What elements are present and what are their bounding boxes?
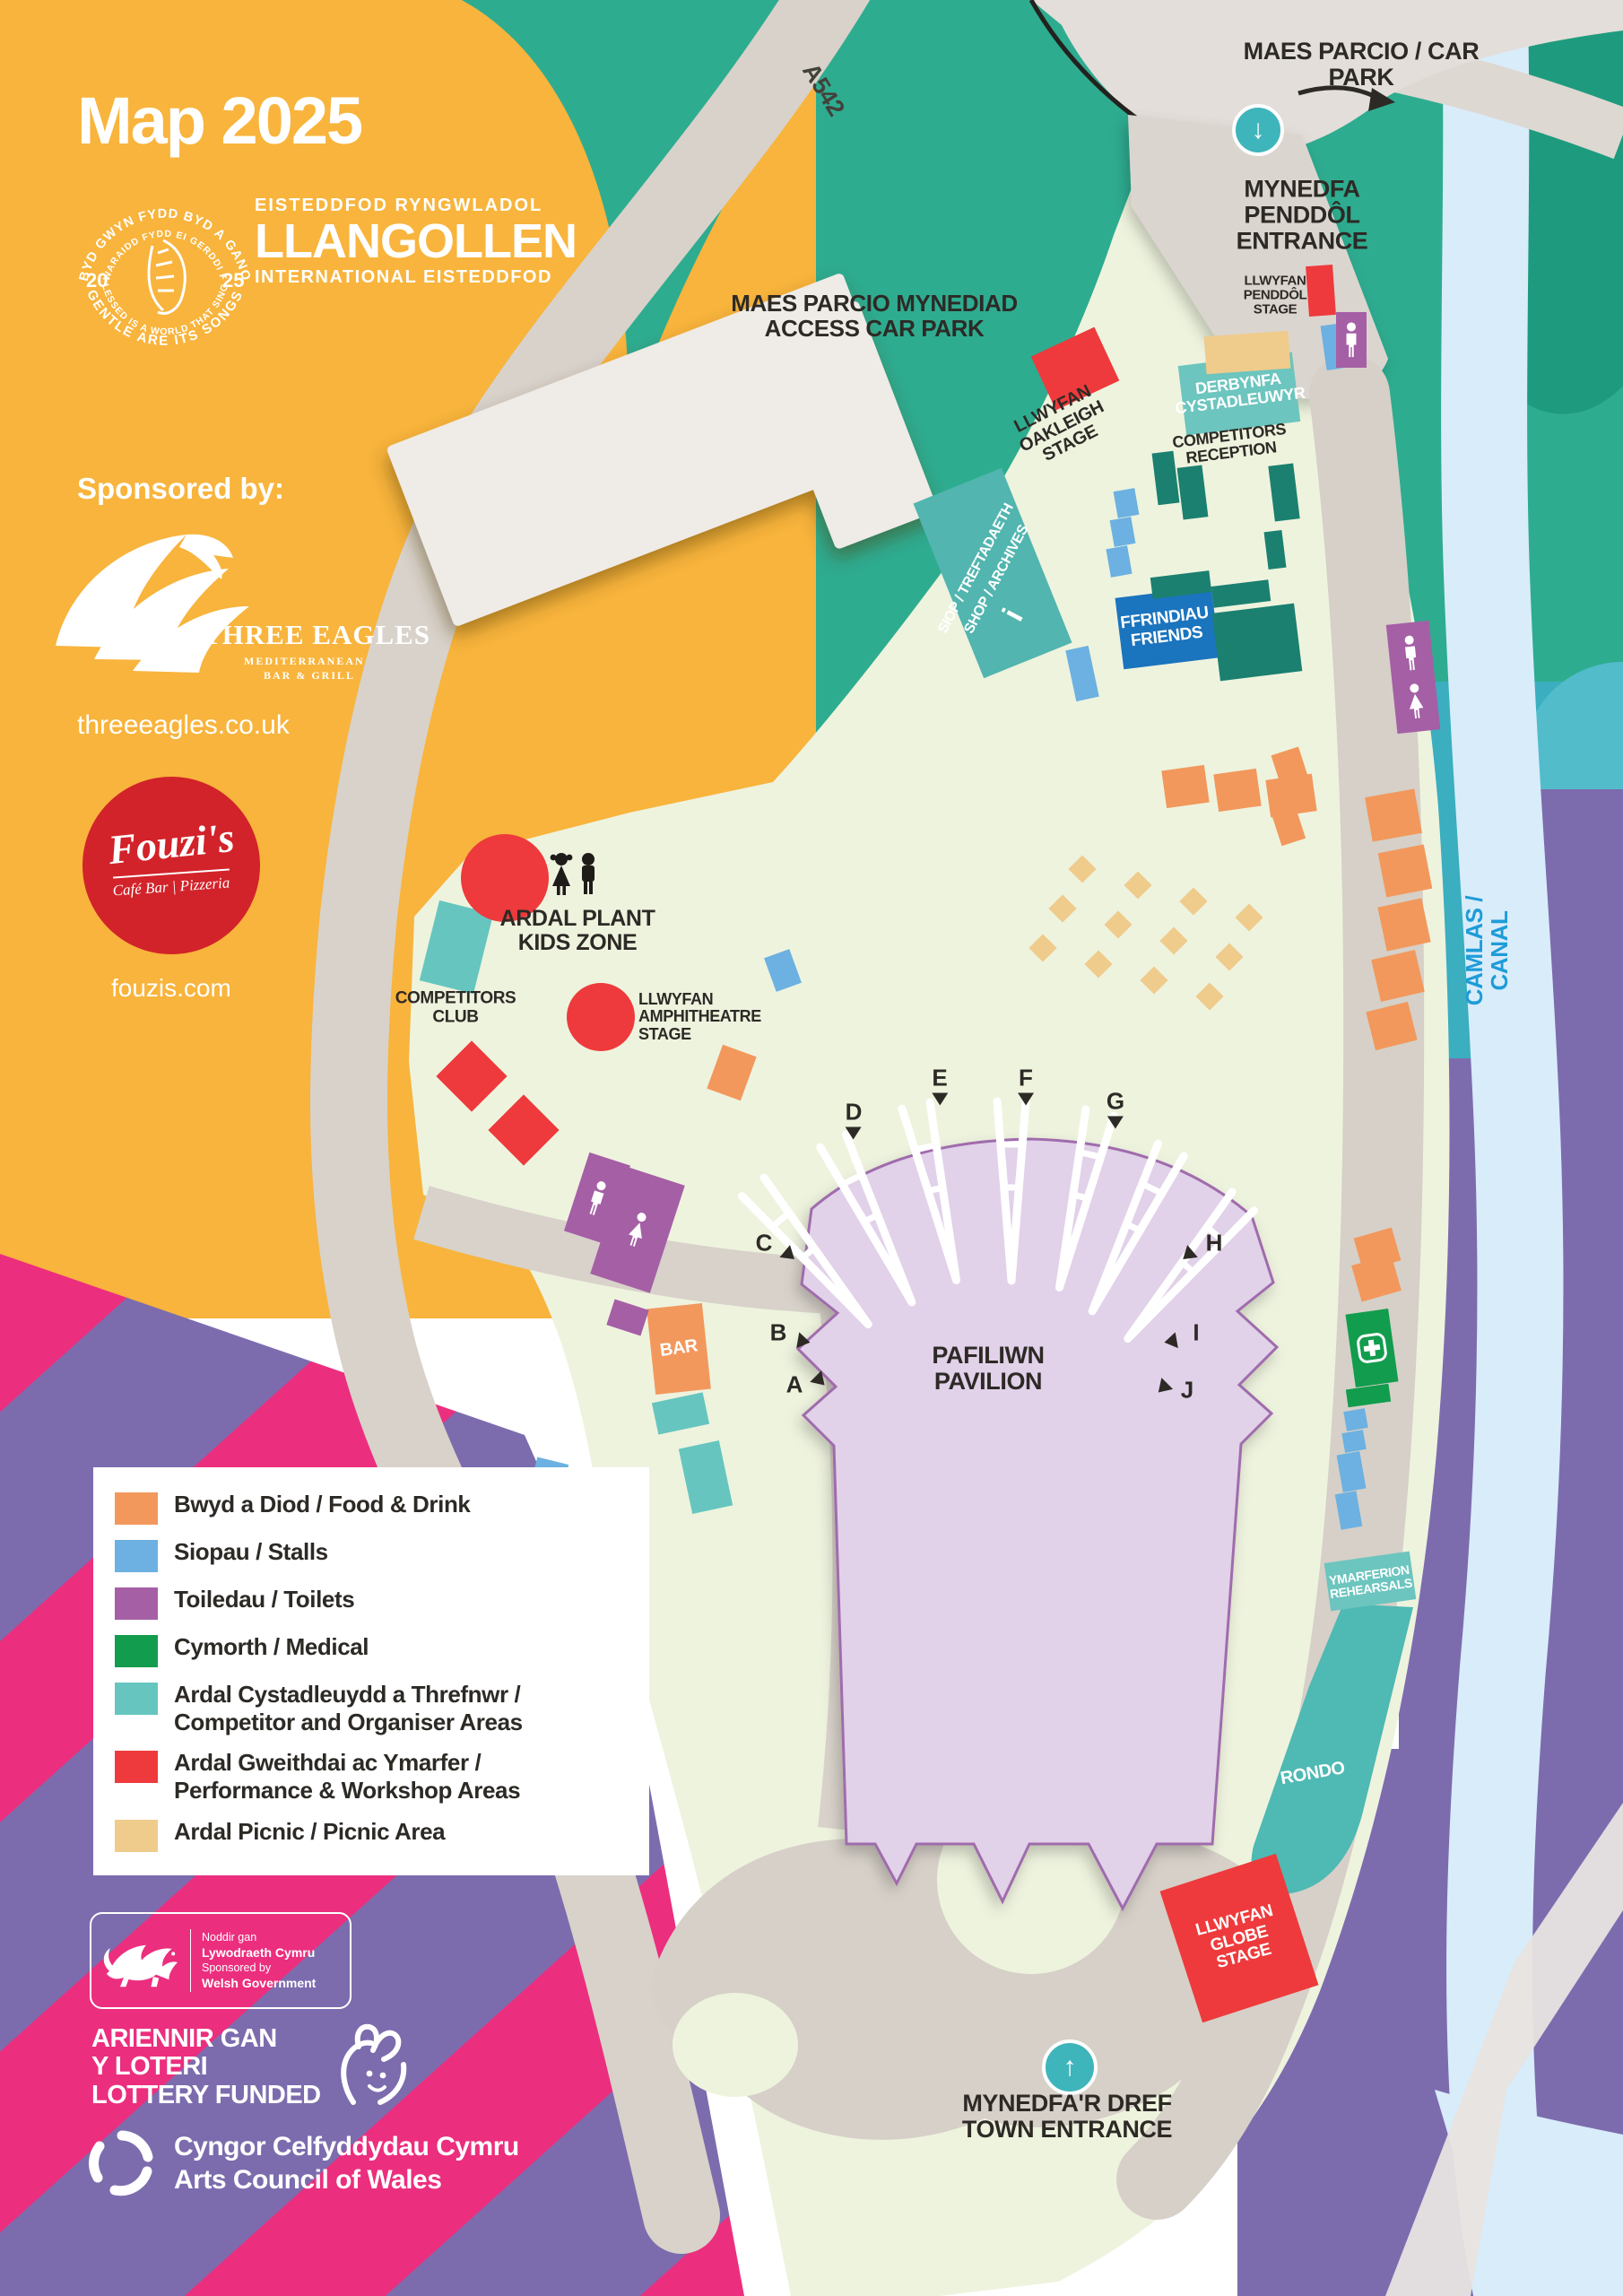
male-toilet-icon	[582, 1178, 612, 1219]
door-arrow-icon	[1018, 1092, 1034, 1105]
pavilion-door-B: B	[770, 1319, 787, 1347]
stall-area	[1106, 545, 1132, 578]
stall-area	[1065, 646, 1098, 701]
door-arrow-icon	[846, 1126, 862, 1139]
toilet-area	[1386, 621, 1440, 734]
picnic-area-dot	[1068, 855, 1096, 883]
badge-harp-lion-icon	[149, 240, 185, 313]
stall-area	[764, 949, 802, 992]
picnic-area-dot	[1124, 871, 1151, 899]
door-arrow-icon	[811, 1370, 831, 1391]
odark-area	[1212, 604, 1303, 682]
door-letter: B	[770, 1319, 787, 1346]
legend-item-toilet: Toiledau / Toilets	[115, 1586, 628, 1620]
food-area	[707, 1045, 756, 1101]
penddol-stage-label: LLWYFAN PENDDÔL STAGE	[1244, 274, 1307, 318]
door-arrow-icon	[1107, 1116, 1124, 1128]
door-arrow-icon	[1153, 1378, 1174, 1398]
door-letter: H	[1206, 1230, 1223, 1257]
toilet-area	[606, 1300, 648, 1336]
door-arrow-icon	[797, 1332, 812, 1350]
legend-label: Ardal Cystadleuydd a Threfnwr /	[174, 1681, 523, 1709]
legend-item-medical: Cymorth / Medical	[115, 1633, 628, 1667]
legend-swatch-medical	[115, 1635, 158, 1667]
odark-area	[1211, 579, 1271, 608]
rondo-label: RONDO	[1279, 1759, 1346, 1789]
legend-label-line2: Competitor and Organiser Areas	[174, 1709, 523, 1736]
badge-year-left: 20	[86, 269, 108, 291]
picnic-area-dot	[1028, 934, 1056, 961]
legend-swatch-organiser	[115, 1683, 158, 1715]
access-carpark-label: MAES PARCIO MYNEDIAD ACCESS CAR PARK	[731, 291, 1017, 341]
three-eagles-name: THREE EAGLES	[203, 619, 430, 651]
door-letter: I	[1193, 1319, 1199, 1346]
wgov-line4: Welsh Government	[202, 1976, 316, 1990]
legend-label: Toiledau / Toilets	[174, 1586, 354, 1613]
up-arrow-icon: ↑	[1063, 2054, 1077, 2081]
legend-item-workshop: Ardal Gweithdai ac Ymarfer /Performance …	[115, 1749, 628, 1804]
pavilion-door-E: E	[932, 1065, 947, 1092]
lottery-line2: Y LOTERI	[91, 2053, 321, 2081]
food-area	[1371, 950, 1425, 1002]
food-area	[1366, 1002, 1417, 1050]
legend-label: Cymorth / Medical	[174, 1633, 369, 1661]
town-entrance-label: MYNEDFA'R DREF TOWN ENTRANCE	[962, 2091, 1172, 2143]
workshop-area	[567, 983, 635, 1051]
eisteddfod-badge-logo: BYD GWYN FYDD BYD A GANO GWARAIDD FYDD E…	[75, 187, 255, 366]
arts-council-logo: Cyngor Celfyddydau Cymru Arts Council of…	[86, 2127, 519, 2199]
picnic-area	[1204, 331, 1291, 374]
door-letter: A	[786, 1371, 803, 1398]
lottery-crossed-fingers-icon	[328, 2020, 411, 2109]
stall-area	[1335, 1491, 1363, 1530]
wgov-line1: Noddir gan	[202, 1930, 316, 1944]
sponsored-by-heading: Sponsored by:	[77, 472, 284, 506]
picnic-area-dot	[1195, 982, 1223, 1010]
picnic-area-dot	[1215, 943, 1243, 970]
medical-area	[1346, 1384, 1391, 1407]
picnic-area-dot	[1048, 894, 1076, 922]
medical-area	[1346, 1309, 1399, 1387]
picnic-area-dot	[1140, 966, 1167, 994]
legend-item-food: Bwyd a Diod / Food & Drink	[115, 1491, 628, 1525]
food-area	[1213, 769, 1261, 812]
fouzis-tagline: Café Bar | Pizzeria	[82, 872, 261, 902]
legend-label: Ardal Gweithdai ac Ymarfer /	[174, 1749, 520, 1777]
pavilion-door-D: D	[846, 1099, 863, 1126]
legend-swatch-workshop	[115, 1751, 158, 1783]
odark-area	[1264, 530, 1287, 570]
down-arrow-icon: ↓	[1252, 117, 1265, 143]
legend-swatch-toilet	[115, 1587, 158, 1620]
lottery-line1: ARIENNIR GAN	[91, 2025, 321, 2053]
workshop-area	[436, 1040, 507, 1111]
wgov-divider	[190, 1929, 191, 1992]
penddol-entrance-label: MYNEDFA PENDDÔL ENTRANCE	[1237, 176, 1368, 254]
door-letter: D	[846, 1099, 863, 1126]
male-toilet-icon	[1399, 634, 1422, 672]
door-arrow-icon	[1178, 1245, 1198, 1265]
legend-item-stall: Siopau / Stalls	[115, 1538, 628, 1572]
three-eagles-logo: THREE EAGLES MEDITERRANEAN BAR & GRILL	[45, 520, 377, 713]
badge-year-right: 25	[222, 269, 244, 291]
food-area	[1365, 789, 1422, 842]
entrance-area: ↑	[1042, 2039, 1098, 2095]
festival-map-poster: ↓↑ABCDEFGHIJMAES PARCIO / CAR PARKMYNEDF…	[0, 0, 1623, 2296]
three-eagles-url: threeeagles.co.uk	[77, 710, 290, 741]
organiser-area	[652, 1392, 709, 1434]
arts-council-line2: Arts Council of Wales	[174, 2163, 519, 2197]
event-name: LLANGOLLEN	[255, 216, 577, 267]
event-title-block: EISTEDDFOD RYNGWLADOL LLANGOLLEN INTERNA…	[255, 196, 577, 288]
legend-item-organiser: Ardal Cystadleuydd a Threfnwr /Competito…	[115, 1681, 628, 1735]
picnic-area-dot	[1104, 910, 1132, 938]
fouzis-url: fouzis.com	[111, 974, 231, 1003]
welsh-dragon-icon	[91, 1926, 185, 1996]
fouzis-logo: Fouzi's Café Bar | Pizzeria	[82, 777, 260, 954]
female-toilet-icon	[621, 1209, 653, 1249]
medical-cross-icon	[1355, 1331, 1389, 1365]
food-area	[1377, 898, 1430, 951]
event-line1: EISTEDDFOD RYNGWLADOL	[255, 196, 577, 216]
welsh-government-logo: Noddir gan Lywodraeth Cymru Sponsored by…	[90, 1912, 352, 2009]
legend-swatch-food	[115, 1492, 158, 1525]
door-letter: E	[932, 1065, 947, 1091]
odark-area	[1177, 465, 1209, 520]
pavilion-label: PAFILIWN PAVILION	[932, 1343, 1044, 1395]
amphitheatre-label: LLWYFAN AMPHITHEATRE STAGE	[638, 991, 761, 1043]
pavilion-door-F: F	[1019, 1065, 1033, 1092]
oakleigh-stage-label: LLWYFAN OAKLEIGH STAGE	[1008, 380, 1116, 474]
canal-label: CAMLAS / CANAL	[1462, 883, 1512, 1019]
arts-council-swirl-icon	[86, 2127, 158, 2199]
legend-label: Bwyd a Diod / Food & Drink	[174, 1491, 471, 1518]
pavilion-door-C: C	[756, 1230, 773, 1257]
odark-area	[1268, 464, 1299, 522]
legend-item-picnic: Ardal Picnic / Picnic Area	[115, 1818, 628, 1852]
female-toilet-icon	[1403, 683, 1428, 720]
food-area	[1378, 844, 1433, 897]
lottery-funded-text: ARIENNIR GAN Y LOTERI LOTTERY FUNDED	[91, 2025, 321, 2109]
door-letter: F	[1019, 1065, 1033, 1091]
carpark-label: MAES PARCIO / CAR PARK	[1230, 39, 1492, 91]
a542-label: A542	[797, 59, 849, 121]
stall-area	[1110, 517, 1136, 547]
lottery-line3: LOTTERY FUNDED	[91, 2082, 321, 2109]
door-letter: G	[1107, 1088, 1124, 1115]
wgov-line2: Lywodraeth Cymru	[202, 1945, 315, 1960]
toilet-area	[1336, 312, 1367, 368]
badge-arc-top-inner: GWARAIDD FYDD EI GERDDI FO	[75, 187, 229, 282]
page-title: Map 2025	[77, 83, 361, 159]
pavilion-door-J: J	[1181, 1377, 1193, 1405]
arts-council-line1: Cyngor Celfyddydau Cymru	[174, 2130, 519, 2164]
kids-zone-label: ARDAL PLANT KIDS ZONE	[500, 907, 655, 955]
door-letter: J	[1181, 1377, 1193, 1404]
legend-label: Ardal Picnic / Picnic Area	[174, 1818, 445, 1846]
picnic-area-dot	[1235, 903, 1263, 931]
picnic-area-dot	[1084, 950, 1112, 978]
organiser-area	[679, 1440, 733, 1514]
stall-area	[1341, 1430, 1366, 1453]
legend-label: Siopau / Stalls	[174, 1538, 328, 1566]
door-arrow-icon	[780, 1245, 800, 1265]
entrance-area: ↓	[1232, 104, 1284, 156]
event-line3: INTERNATIONAL EISTEDDFOD	[255, 267, 577, 288]
eagle-wing-icon	[45, 520, 269, 709]
pavilion-door-A: A	[786, 1371, 803, 1399]
wgov-line3: Sponsored by	[202, 1961, 316, 1975]
workshop-area	[488, 1094, 559, 1165]
door-arrow-icon	[932, 1092, 948, 1105]
workshop-area	[1306, 265, 1336, 317]
picnic-area-dot	[1159, 926, 1187, 954]
food-area	[1161, 765, 1209, 808]
male-toilet-icon	[1341, 322, 1361, 358]
door-letter: C	[756, 1230, 773, 1257]
legend-swatch-stall	[115, 1540, 158, 1572]
fouzis-name: Fouzi's	[81, 811, 262, 876]
pavilion-door-H: H	[1206, 1230, 1223, 1257]
competitors-club-label: COMPETITORS CLUB	[395, 989, 516, 1026]
stall-area	[1337, 1451, 1367, 1492]
map-legend: Bwyd a Diod / Food & DrinkSiopau / Stall…	[93, 1467, 649, 1875]
svg-text:GWARAIDD FYDD EI GERDDI FO: GWARAIDD FYDD EI GERDDI FO	[75, 187, 229, 282]
three-eagles-tagline2: BAR & GRILL	[264, 669, 355, 683]
picnic-area-dot	[1179, 887, 1207, 915]
pavilion-door-G: G	[1107, 1088, 1124, 1116]
stall-area	[1343, 1408, 1367, 1431]
legend-swatch-picnic	[115, 1820, 158, 1852]
legend-label-line2: Performance & Workshop Areas	[174, 1777, 520, 1805]
door-arrow-icon	[1163, 1332, 1178, 1350]
stall-area	[1114, 488, 1140, 518]
pavilion-door-I: I	[1193, 1319, 1199, 1347]
three-eagles-tagline1: MEDITERRANEAN	[244, 655, 365, 668]
